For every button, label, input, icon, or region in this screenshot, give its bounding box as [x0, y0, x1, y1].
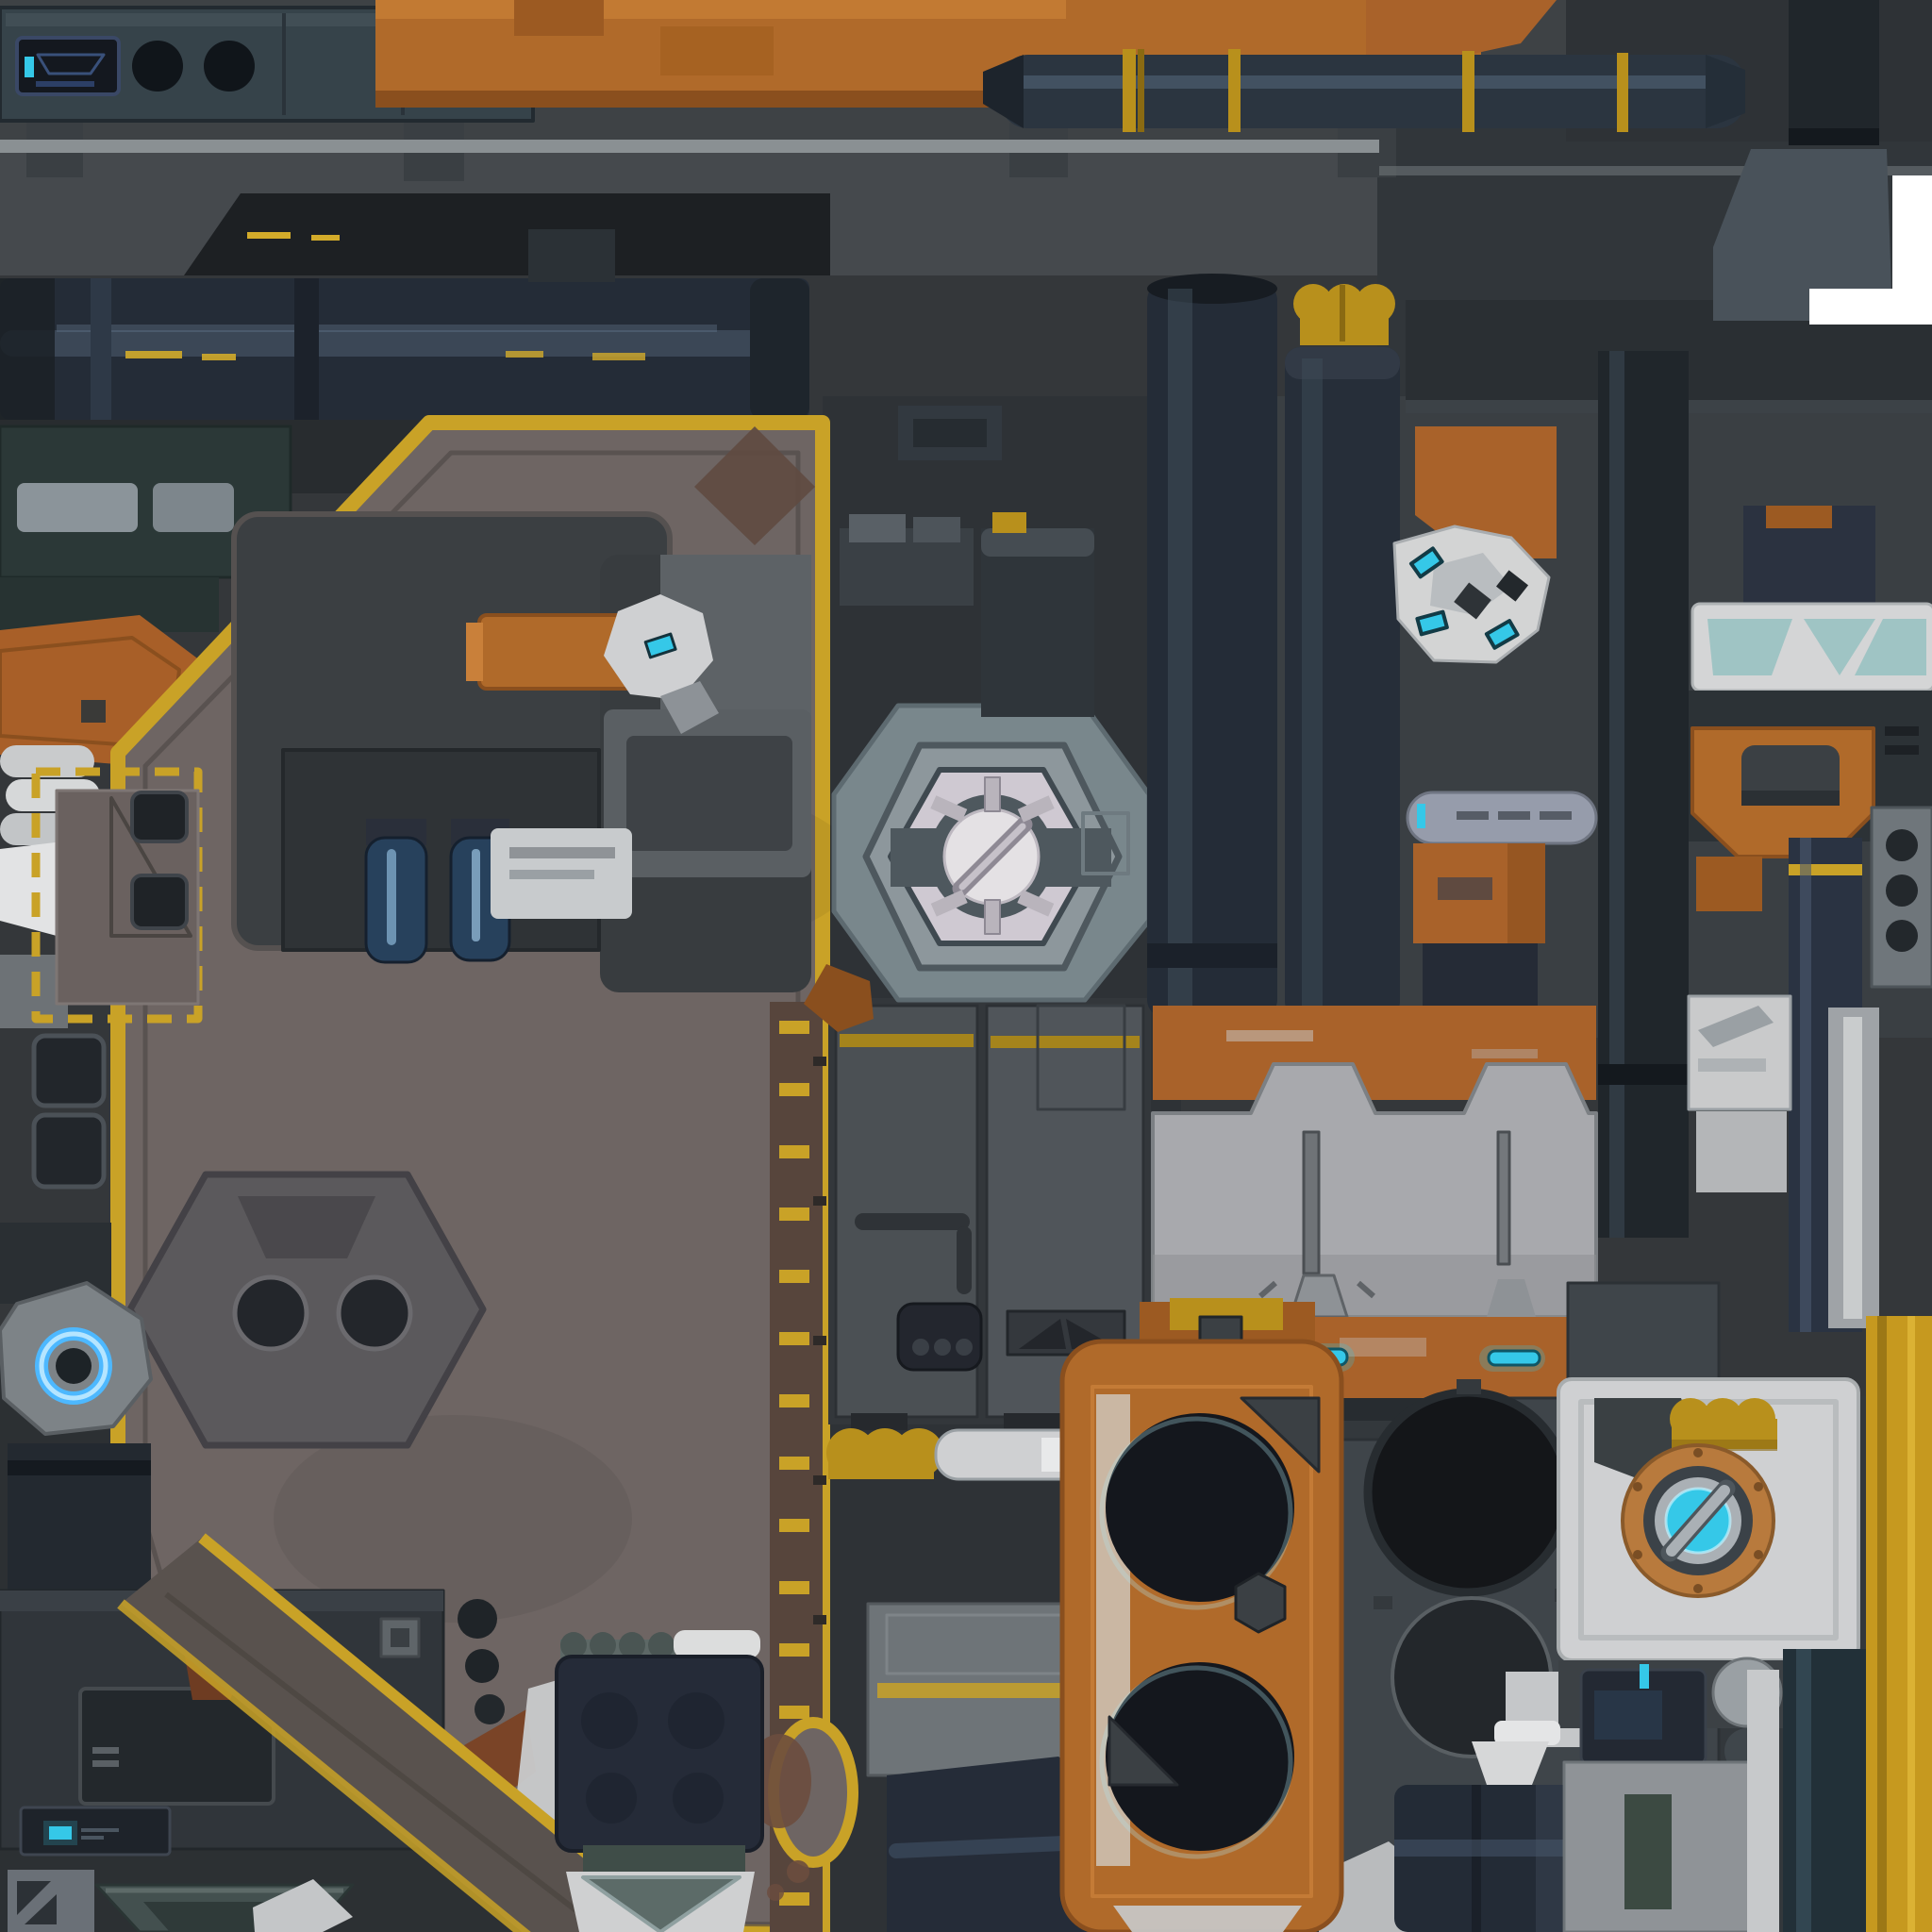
wall-stud — [813, 1336, 826, 1345]
pipe-column-hi — [1609, 351, 1624, 1238]
rail-white — [1747, 1670, 1779, 1932]
glint-1 — [247, 232, 291, 239]
dome — [560, 1632, 587, 1658]
wall-stud — [813, 1475, 826, 1485]
pipe-north-ring3 — [1462, 51, 1474, 132]
vent-capsule-slot — [1540, 811, 1572, 820]
pipe-west-joint2 — [294, 278, 319, 420]
glint-2 — [311, 235, 340, 241]
navy-block — [557, 1657, 762, 1851]
dial-bolt-4 — [1693, 1584, 1703, 1593]
pipe-gold-hi — [1907, 1316, 1915, 1932]
funnel-bar — [583, 1845, 745, 1872]
pipe-west-sheen2 — [57, 325, 717, 332]
navy-block-hole-bottom — [673, 1773, 724, 1824]
pipe-teal-br-hi — [1796, 1649, 1811, 1932]
navy-block-hole-bottom — [586, 1773, 637, 1824]
crate-z-lower — [1696, 1111, 1787, 1192]
pipe-navy-br-band — [1536, 1785, 1562, 1932]
door-tab-2 — [1004, 1413, 1060, 1430]
stub-greeble-cap1 — [849, 514, 906, 542]
pipe-navy-br-seam — [1472, 1785, 1481, 1932]
vent-capsule-slot — [1498, 811, 1530, 820]
vent-tab-1 — [1457, 1379, 1481, 1394]
bolt-hole-1 — [458, 1599, 497, 1639]
glint-4 — [125, 351, 182, 358]
socket-sq-2 — [132, 875, 187, 928]
door-socket — [898, 1304, 981, 1370]
rail-silver-channel — [1843, 1017, 1862, 1319]
hazard-dash — [779, 1643, 809, 1657]
bl-readout-led — [49, 1826, 72, 1840]
bolt-hole-3 — [475, 1694, 505, 1724]
socket-sq-1 — [132, 792, 187, 841]
jar-shine-1 — [387, 849, 396, 945]
vent-capsule-slot — [1457, 811, 1489, 820]
manifold-hole — [1886, 829, 1918, 861]
boss-cylinder-band — [8, 1460, 151, 1475]
display-power-led — [25, 57, 34, 77]
pipe-gold-channel — [1877, 1316, 1887, 1932]
hex-plate-stud — [81, 700, 106, 723]
white-machine-stripe1 — [509, 847, 615, 858]
white-cap — [674, 1630, 760, 1658]
door-left-handle-drop — [957, 1226, 972, 1294]
hazard-dash — [779, 1457, 809, 1470]
hex-eye-1 — [235, 1277, 307, 1349]
pipe-north-ring1 — [1123, 49, 1136, 132]
hazard-dash — [779, 1332, 809, 1345]
orange-box-cap — [466, 623, 483, 681]
pipe-column-joint — [1598, 1064, 1689, 1085]
crate-orange-slot — [1438, 877, 1492, 900]
hazard-dash — [779, 1083, 809, 1096]
speaker-neck-stud — [1200, 1317, 1241, 1341]
teal-slot-2 — [153, 483, 234, 532]
bracket-tab — [1696, 857, 1762, 911]
bl-screen-vent2 — [92, 1760, 119, 1767]
door-right-stripe — [991, 1036, 1140, 1048]
crate-z — [1689, 996, 1790, 1109]
dial-bolt-1 — [1693, 1448, 1703, 1457]
pipe-tower-1-cap — [1147, 274, 1277, 304]
dial-bolt-6 — [1633, 1482, 1642, 1491]
gold-manifold-seam — [1340, 285, 1345, 341]
dial-bolt-5 — [1633, 1550, 1642, 1559]
dome — [590, 1632, 616, 1658]
stub-greeble-cap2 — [913, 517, 960, 542]
pipe-west-cap — [0, 278, 55, 420]
wall-stud — [813, 1615, 826, 1624]
hazard-dash — [779, 1207, 809, 1221]
port-hole-1 — [132, 41, 183, 92]
hazard-dash — [779, 1145, 809, 1158]
dome — [648, 1632, 675, 1658]
girder-tab — [514, 0, 604, 36]
hang-bracket-slot — [913, 419, 987, 447]
dome — [619, 1632, 645, 1658]
housing-vent-2 — [1885, 745, 1919, 755]
hazard-dash — [779, 1519, 809, 1532]
teal-slot-1 — [17, 483, 138, 532]
gate-slot-1 — [1304, 1132, 1319, 1274]
stub-gold-tab — [992, 512, 1026, 533]
housing-vent-1 — [1885, 726, 1919, 736]
hexm-tick-n — [985, 777, 1000, 811]
pipe-west-sheen — [0, 330, 809, 357]
rust-dot-2 — [767, 1884, 784, 1901]
gate-slot-2 — [1498, 1132, 1509, 1264]
navy-block-hole-top — [581, 1692, 638, 1749]
nav-block-tab — [1766, 506, 1832, 528]
door-tab-1 — [851, 1413, 908, 1430]
pipe-gold — [1866, 1316, 1932, 1932]
hazard-dash — [779, 1021, 809, 1034]
girder-highlight — [375, 0, 1094, 19]
rail — [0, 140, 1379, 153]
pipe-navy-east-ring — [1789, 864, 1862, 875]
dial-bolt-2 — [1754, 1482, 1763, 1491]
pipe-navy-east-hi — [1800, 838, 1811, 1332]
vent-tab-3 — [1374, 1596, 1392, 1609]
pipe-west-bracket — [528, 229, 615, 282]
hazard-dash — [779, 1892, 809, 1906]
bolt-hole-2 — [465, 1649, 499, 1683]
display-underline — [36, 81, 94, 87]
tr-pipe-cap — [1789, 128, 1879, 145]
pipe-tower-1-joint — [1147, 943, 1277, 968]
socket-sq-4 — [34, 1115, 104, 1187]
socket-sq-3 — [34, 1036, 104, 1106]
bl-stud-core — [391, 1628, 409, 1647]
rust-dot-1 — [787, 1860, 809, 1883]
bl-readout-line2 — [81, 1836, 104, 1840]
hazard-dash — [779, 1394, 809, 1407]
hexm-tick-s — [985, 900, 1000, 934]
green-slab — [1624, 1794, 1672, 1909]
gate-scratch-2 — [1472, 1049, 1538, 1058]
pipe-west-end — [750, 278, 809, 420]
wall-stud — [813, 1057, 826, 1066]
white-machine-stripe2 — [509, 870, 594, 879]
hex-eye-2 — [339, 1277, 410, 1349]
gray-panel-inset — [626, 736, 792, 851]
pipe-north-ring2 — [1228, 49, 1241, 132]
bracket-hole-shadow — [1741, 791, 1840, 806]
pipe-tower-2-hi — [1302, 358, 1323, 1017]
pipe-north — [1000, 55, 1745, 128]
clamp-gold-base — [828, 1453, 934, 1479]
gate-scratch-1 — [1226, 1030, 1313, 1041]
door-socket-pin — [956, 1339, 973, 1356]
door-left-stripe — [840, 1034, 974, 1047]
dial-machine-glass — [1594, 1690, 1662, 1740]
glow-center — [56, 1348, 92, 1384]
pipe-north-ring4 — [1617, 53, 1628, 132]
manifold-hole — [1886, 920, 1918, 952]
console-seam-1 — [282, 13, 286, 115]
jar-shine-2 — [472, 849, 480, 941]
pipe-tower-1 — [1147, 283, 1277, 1017]
girder-inset — [660, 26, 774, 75]
glint-5 — [202, 354, 236, 360]
led-2 — [1489, 1351, 1540, 1365]
door-socket-pin — [912, 1339, 929, 1356]
bl-readout-line1 — [81, 1828, 119, 1832]
manifold-hole — [1886, 874, 1918, 907]
pipe-north-ring1b — [1138, 49, 1144, 132]
pipe-teal-br — [1783, 1649, 1870, 1932]
speaker-bottom-white — [1113, 1906, 1302, 1932]
vent-hole-big — [1368, 1392, 1568, 1592]
bl-screen-vent1 — [92, 1747, 119, 1754]
crate-z-bar — [1698, 1058, 1766, 1072]
glint-7 — [592, 353, 645, 360]
hazard-dash — [779, 1270, 809, 1283]
navy-block-hole-top — [668, 1692, 724, 1749]
dial-bolt-3 — [1754, 1550, 1763, 1559]
dial-machine-led — [1640, 1664, 1649, 1689]
texture-atlas-stage — [0, 0, 1932, 1932]
pipe-tower-1-hi — [1168, 289, 1192, 1017]
tr-pipe — [1789, 0, 1879, 142]
crate-orange-shade — [1507, 843, 1545, 943]
vent-capsule-led — [1417, 804, 1425, 828]
speaker-hex-plate — [1236, 1574, 1285, 1632]
hazard-dash — [779, 1706, 809, 1719]
door-socket-pin — [934, 1339, 951, 1356]
texture-atlas-canvas — [0, 0, 1932, 1932]
wall-stud — [813, 1196, 826, 1206]
hazard-dash — [779, 1581, 809, 1594]
pipe-west-joint1 — [91, 278, 111, 420]
door-left-handle — [855, 1213, 970, 1230]
port-hole-2 — [204, 41, 255, 92]
glint-6 — [506, 351, 543, 358]
